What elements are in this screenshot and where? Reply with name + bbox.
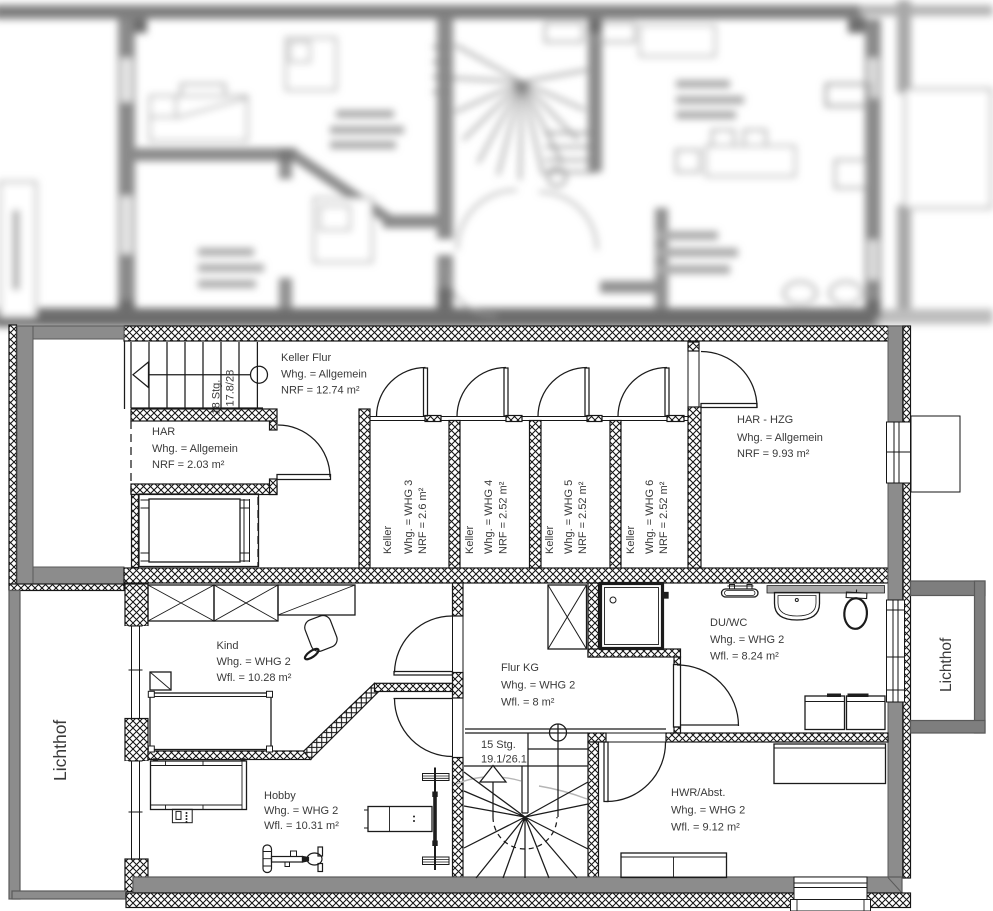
svg-text:Whg. = WHG 2: Whg. = WHG 2: [501, 680, 575, 692]
svg-text:Whg. = WHG 3: Whg. = WHG 3: [403, 480, 415, 554]
svg-text:Keller: Keller: [544, 526, 556, 554]
svg-text:Wfl. = 9.12 m²: Wfl. = 9.12 m²: [671, 822, 740, 834]
svg-text:Whg. = WHG 2: Whg. = WHG 2: [710, 634, 784, 646]
svg-text:HAR: HAR: [152, 426, 175, 438]
svg-text:NRF = 2.52 m²: NRF = 2.52 m²: [498, 481, 510, 554]
svg-text:19.1/26.1: 19.1/26.1: [481, 754, 527, 766]
svg-text:Flur KG: Flur KG: [501, 662, 539, 674]
svg-text:NRF = 9.93 m²: NRF = 9.93 m²: [737, 448, 810, 460]
svg-text:Keller Flur: Keller Flur: [281, 352, 331, 364]
svg-text:NRF = 2.52 m²: NRF = 2.52 m²: [658, 481, 670, 554]
svg-text:18 Stg.: 18 Stg.: [211, 380, 223, 415]
svg-text:Whg. = WHG 4: Whg. = WHG 4: [483, 480, 495, 554]
svg-text:Hobby: Hobby: [264, 790, 296, 802]
svg-text:Kind: Kind: [217, 640, 239, 652]
svg-text:Whg. = Allgemein: Whg. = Allgemein: [737, 432, 823, 444]
svg-text:17.8/28: 17.8/28: [225, 370, 237, 407]
svg-text:HWR/Abst.: HWR/Abst.: [671, 787, 725, 799]
svg-text:Keller: Keller: [625, 526, 637, 554]
svg-text:Wfl. = 10.31 m²: Wfl. = 10.31 m²: [264, 820, 339, 832]
svg-text:Whg. = WHG 6: Whg. = WHG 6: [644, 480, 656, 554]
svg-text:NRF = 2.6 m²: NRF = 2.6 m²: [417, 487, 429, 554]
svg-text:Whg. = Allgemein: Whg. = Allgemein: [152, 443, 238, 455]
svg-text:Lichthof: Lichthof: [50, 720, 70, 781]
svg-text:Whg. = WHG 2: Whg. = WHG 2: [671, 805, 745, 817]
svg-text:Wfl. = 8.24 m²: Wfl. = 8.24 m²: [710, 651, 779, 663]
svg-text:Keller: Keller: [464, 526, 476, 554]
svg-text:DU/WC: DU/WC: [710, 617, 747, 629]
svg-text:Keller: Keller: [382, 526, 394, 554]
svg-text:Whg. = WHG 5: Whg. = WHG 5: [563, 480, 575, 554]
svg-text:15 Stg.: 15 Stg.: [481, 739, 516, 751]
svg-text:Whg. = Allgemein: Whg. = Allgemein: [281, 369, 367, 381]
svg-text:Lichthof: Lichthof: [938, 637, 955, 692]
svg-text:NRF = 2.03 m²: NRF = 2.03 m²: [152, 459, 225, 471]
svg-text:NRF = 12.74 m²: NRF = 12.74 m²: [281, 385, 360, 397]
svg-text:NRF = 2.52 m²: NRF = 2.52 m²: [577, 481, 589, 554]
svg-text:Wfl. = 10.28 m²: Wfl. = 10.28 m²: [217, 672, 292, 684]
svg-text:Whg. = WHG 2: Whg. = WHG 2: [217, 656, 291, 668]
svg-text:HAR - HZG: HAR - HZG: [737, 414, 793, 426]
svg-text:Wfl. = 8 m²: Wfl. = 8 m²: [501, 697, 555, 709]
svg-text:Whg. = WHG 2: Whg. = WHG 2: [264, 805, 338, 817]
